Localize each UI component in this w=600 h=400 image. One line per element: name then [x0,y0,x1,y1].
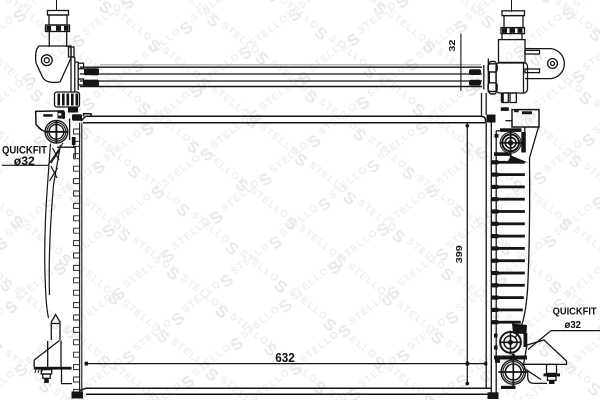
svg-text:632: 632 [275,351,295,365]
svg-text:QUICKFIT: QUICKFIT [553,305,598,317]
svg-text:ø32: ø32 [565,320,582,331]
svg-text:ø32: ø32 [14,154,35,168]
svg-text:32: 32 [447,39,457,51]
svg-text:399: 399 [454,245,464,263]
